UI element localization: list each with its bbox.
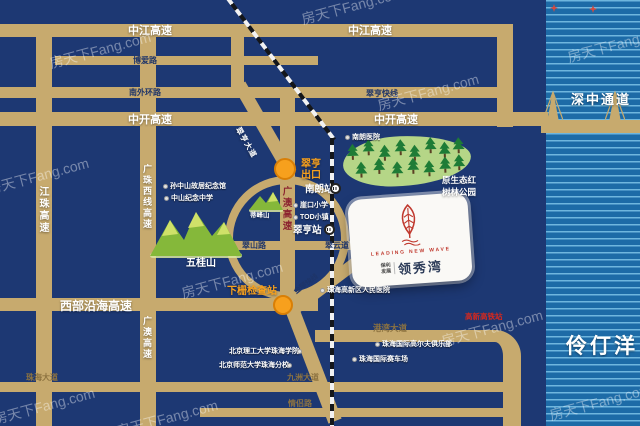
property-card: LEADING NEW WAVE 保利 发展 领秀湾 [347,192,473,288]
poi-dot-icon [164,196,169,201]
bridge-pylon-icon [543,90,563,122]
road-label-zhongjiang-1: 中江高速 [128,26,172,37]
road-label-boai: 博爱路 [133,57,157,65]
exit-label-line1: 翠亨 [301,160,321,170]
road-zhongkai-expressway [0,112,548,126]
poi-gaoxin-hospital: 珠海高新区人民医院 [327,287,390,294]
road-label-cuiyun: 翠云道 [325,242,349,250]
location-map: 中江高速 中江高速 博爱路 南外环路 翠亨快线 中开高速 中开高速 深中通道 江… [0,0,640,426]
road-label-guangao-north: 广澳高速 [281,186,291,232]
nanlang-station-icon [330,183,341,194]
road-vertical-east-connector [497,24,513,127]
label-mangrove-park-line2: 树林公园 [442,188,476,197]
poi-sun-yatsen-memorial: 孙中山故居纪念馆 [170,183,226,190]
leaf-logo-icon [395,203,422,247]
road-label-jiangzhu: 江珠高速 [37,186,47,234]
sea-label: 伶仃洋 [566,336,638,357]
poi-tod-town: TOD小镇 [300,214,329,221]
label-mangrove-park-line1: 原生态红 [442,176,476,185]
road-label-zhongkai-1: 中开高速 [128,115,172,126]
difeng-mountain-icon [249,190,283,212]
railway-vertical [330,138,334,426]
poi-dot-icon [293,215,298,220]
poi-planned-station: 高新高铁站 [465,313,503,321]
road-label-zhongkai-2: 中开高速 [374,115,418,126]
poi-dot-icon [297,349,302,354]
label-wugui-mountain: 五桂山 [186,259,216,269]
poi-zhongshan-memorial-school: 中山纪念中学 [171,195,213,202]
station-label-cuiheng: 翠亨站 [293,226,322,236]
poi-dot-icon [287,363,292,368]
poi-dot-icon [375,342,380,347]
poi-intl-golf: 珠海国际高尔夫俱乐部 [382,341,452,348]
xiazha-checkpoint-circle-icon [273,295,293,315]
property-name-row: 保利 发展 领秀湾 [380,255,443,278]
road-label-gangwan-avenue: 港湾大道 [373,324,407,333]
cuiheng-exit-circle-icon [274,158,296,180]
road-label-zhuhai-avenue: 珠海大道 [26,374,58,382]
poi-intl-circuit: 珠海国际赛车场 [359,356,408,363]
decorative-red-mark-icon [589,5,597,13]
label-difeng-mountain: 蒂峰山 [250,213,270,220]
road-label-guangzhu-west: 广珠西线高速 [142,164,151,230]
cuiheng-station-icon [324,224,335,235]
road-label-cuiheng-express: 翠亨快线 [366,90,398,98]
poi-yakou-primary: 崖口小学 [300,202,328,209]
poi-dot-icon [163,184,168,189]
poi-bit-zhuhai: 北京理工大学珠海学院 [229,348,299,355]
road-label-jiuzhou-avenue: 九洲大道 [287,374,319,382]
lingdingyang-sea [546,0,640,426]
property-brand: 保利 发展 [381,262,396,275]
poi-dot-icon [293,203,298,208]
poi-nanlang-hospital: 南朗医院 [352,134,380,141]
poi-dot-icon [320,288,325,293]
road-label-cuishan: 翠山路 [242,242,266,250]
property-name: 领秀湾 [397,255,443,277]
poi-dot-icon [345,135,350,140]
road-label-west-coastal: 西部沿海高速 [60,300,132,312]
poi-dot-icon [352,357,357,362]
checkpoint-label: 下栅检查站 [227,287,277,297]
wugui-mountain-icon [150,208,242,258]
road-label-qinglv: 情侣路 [288,400,312,408]
bridge-label-shenzhong: 深中通道 [571,93,631,106]
road-label-guangao-south: 广澳高速 [142,316,151,360]
property-brand-line2: 发展 [381,268,391,275]
road-label-south-ring: 南外环路 [129,89,161,97]
road-label-zhongjiang-2: 中江高速 [348,26,392,37]
poi-bnu-zhuhai: 北京师范大学珠海分校 [219,362,289,369]
road-label-cuiheng-avenue: 翠亨大道 [235,126,258,159]
exit-label-line2: 出口 [301,171,321,181]
decorative-red-mark-icon [550,4,558,12]
